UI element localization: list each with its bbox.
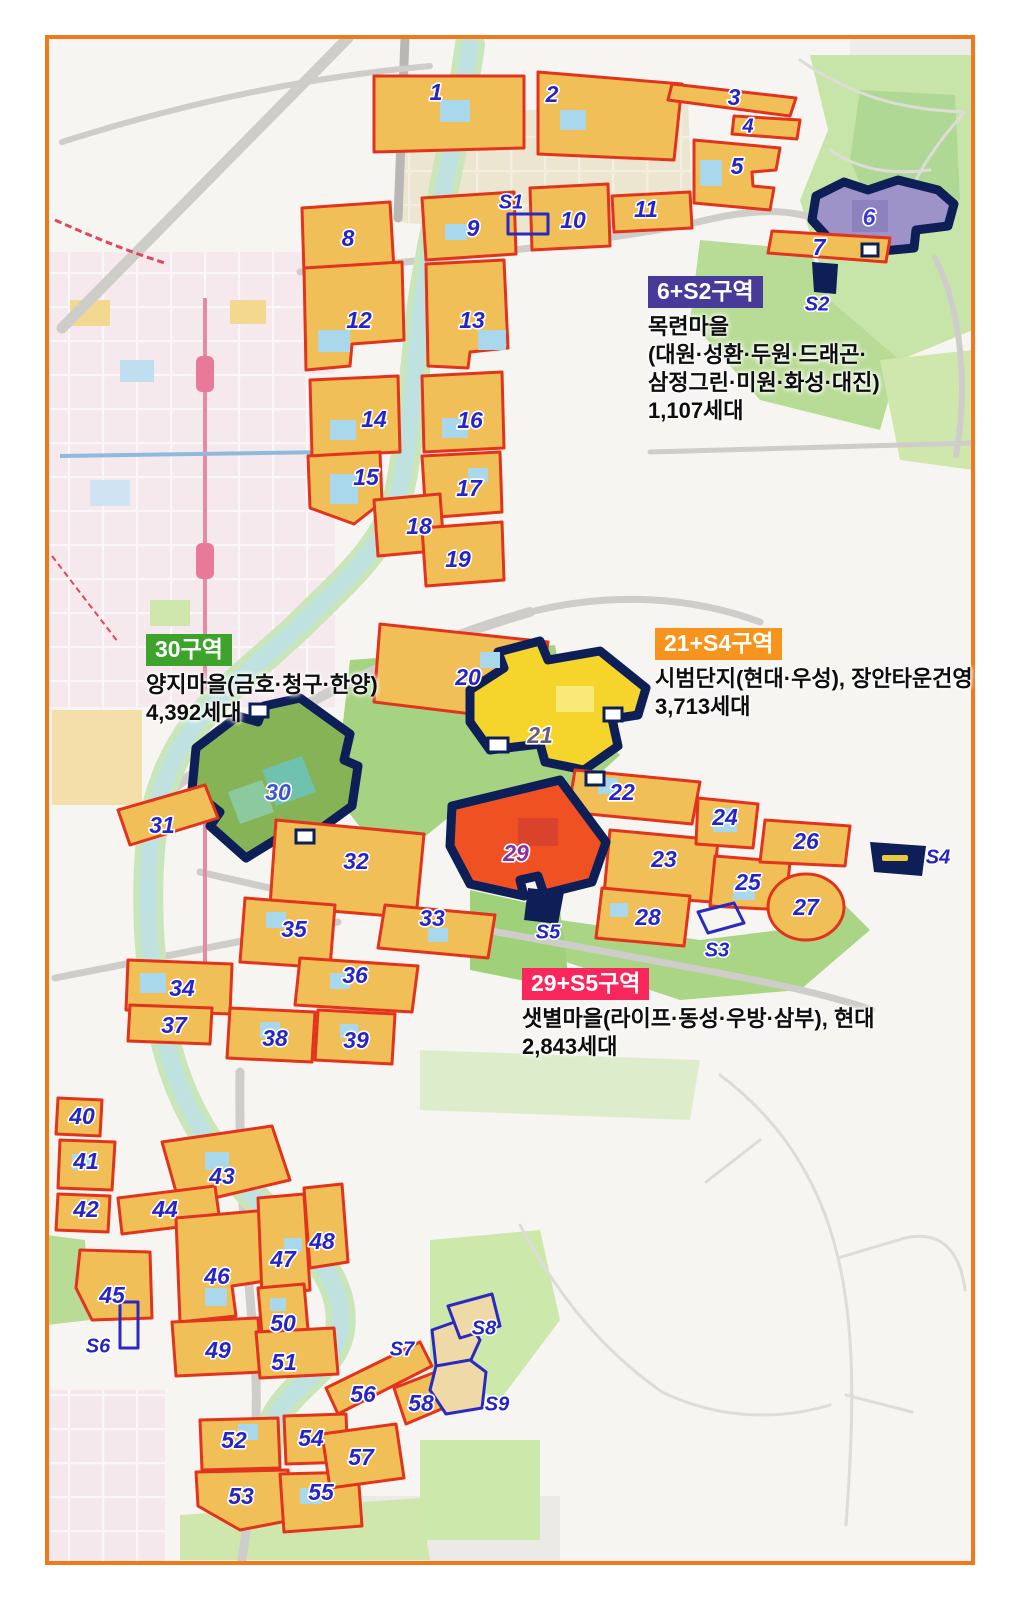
zone-35-label: 35: [281, 916, 308, 942]
zone-47-label: 47: [269, 1246, 297, 1272]
zone-58-label: 58: [408, 1390, 434, 1416]
zone-51-label: 51: [271, 1349, 297, 1375]
zone-18-label: 18: [406, 513, 432, 539]
district-badge-30: 30구역: [146, 634, 232, 666]
zone-38-label: 38: [262, 1025, 288, 1051]
zone-6-label: 6: [863, 204, 876, 230]
zone-23-label: 23: [650, 846, 677, 872]
zone-16-label: 16: [457, 407, 483, 433]
district-badge-29-s5: 29+S5구역: [522, 968, 649, 1000]
zone-26-label: 26: [792, 828, 819, 854]
callout-line: 양지마을(금호·청구·한양): [146, 671, 378, 699]
zone-10-label: 10: [560, 207, 586, 233]
zone-2-area[interactable]: [538, 72, 682, 160]
district-map-canvas: 1234567S2891011S112131416151718192021222…: [0, 0, 1019, 1600]
zone-3-label: 3: [728, 84, 741, 110]
zone-43-label: 43: [208, 1163, 235, 1189]
zone-S7-label: S7: [390, 1338, 415, 1360]
zone-46-label: 46: [203, 1263, 230, 1289]
zone-11-label: 11: [634, 196, 658, 222]
zone-8-label: 8: [342, 225, 355, 251]
zone-24-label: 24: [711, 804, 738, 830]
map-page: 1234567S2891011S112131416151718192021222…: [0, 0, 1019, 1600]
zone-2-label: 2: [545, 81, 559, 107]
zone-S9-label: S9: [485, 1393, 510, 1415]
zone-1-label: 1: [430, 79, 443, 105]
callout-line: (대원·성환·두원·드래곤·: [648, 341, 880, 369]
zone-S6-label: S6: [86, 1335, 111, 1357]
zone-22-label: 22: [608, 779, 635, 805]
zone-21-label: 21: [526, 722, 553, 748]
zone-17-label: 17: [456, 475, 483, 501]
callout-line: 2,843세대: [522, 1033, 874, 1061]
zone-27-label: 27: [792, 894, 820, 920]
district-badge-21-s4: 21+S4구역: [655, 628, 782, 660]
zone-49-label: 49: [204, 1337, 231, 1363]
zone-39-label: 39: [343, 1027, 369, 1053]
zone-48-label: 48: [308, 1228, 335, 1254]
zone-S5-label: S5: [536, 921, 561, 943]
zone-19-label: 19: [445, 546, 471, 572]
zone-36-label: 36: [342, 962, 368, 988]
zone-4-label: 4: [741, 115, 753, 137]
callout-line: 3,713세대: [655, 693, 973, 721]
zone-33-label: 33: [419, 905, 445, 931]
zone-5-label: 5: [731, 153, 745, 179]
zone-37-label: 37: [161, 1012, 188, 1038]
callout-line: 삼정그린·미원·화성·대진): [648, 369, 880, 397]
zone-14-label: 14: [361, 406, 387, 432]
zone-28-label: 28: [634, 904, 661, 930]
zone-42-label: 42: [72, 1196, 99, 1222]
callout-line: 샛별마을(라이프·동성·우방·삼부), 현대: [522, 1005, 874, 1033]
zone-32-label: 32: [343, 848, 369, 874]
zone-25-label: 25: [734, 869, 762, 895]
metro-station: [196, 356, 214, 392]
zone-20-label: 20: [454, 664, 481, 690]
zone-34-label: 34: [169, 975, 195, 1001]
zone-15-label: 15: [353, 464, 380, 490]
zone-31-label: 31: [149, 812, 175, 838]
zone-50-label: 50: [270, 1310, 296, 1336]
zone-40-label: 40: [68, 1103, 95, 1129]
zone-S3-label: S3: [705, 939, 729, 961]
zone-13-label: 13: [459, 307, 485, 333]
zone-S5-area[interactable]: [524, 888, 564, 924]
zone-52-label: 52: [221, 1427, 247, 1453]
callout-district-30: 30구역 양지마을(금호·청구·한양) 4,392세대: [146, 634, 378, 727]
zone-9-label: 9: [467, 215, 480, 241]
callout-line: 1,107세대: [648, 397, 880, 425]
zone-S4-label: S4: [926, 846, 950, 868]
zone-41-label: 41: [72, 1148, 99, 1174]
callout-district-6-s2: 6+S2구역 목련마을 (대원·성환·두원·드래곤· 삼정그린·미원·화성·대진…: [648, 276, 880, 425]
zone-29-label: 29: [502, 840, 529, 866]
zone-57-label: 57: [348, 1444, 375, 1470]
zone-S1-label: S1: [499, 191, 523, 213]
zone-51-area[interactable]: [256, 1328, 338, 1378]
zone-7-label: 7: [813, 234, 827, 260]
zone-54-label: 54: [298, 1425, 324, 1451]
district-badge-6-s2: 6+S2구역: [648, 276, 763, 308]
metro-station: [196, 543, 214, 579]
zone-12-label: 12: [346, 307, 372, 333]
zone-55-label: 55: [308, 1479, 335, 1505]
callout-line: 4,392세대: [146, 699, 378, 727]
zone-53-label: 53: [228, 1483, 254, 1509]
zone-45-label: 45: [98, 1282, 126, 1308]
zone-48-area[interactable]: [304, 1184, 348, 1268]
zone-44-label: 44: [151, 1196, 178, 1222]
zone-30-label: 30: [265, 779, 291, 805]
callout-line: 목련마을: [648, 313, 880, 341]
callout-district-21-s4: 21+S4구역 시범단지(현대·우성), 장안타운건영 3,713세대: [655, 628, 973, 721]
zone-S8-label: S8: [472, 1317, 497, 1339]
zone-56-label: 56: [350, 1381, 376, 1407]
callout-line: 시범단지(현대·우성), 장안타운건영: [655, 665, 973, 693]
callout-district-29-s5: 29+S5구역 샛별마을(라이프·동성·우방·삼부), 현대 2,843세대: [522, 968, 874, 1061]
